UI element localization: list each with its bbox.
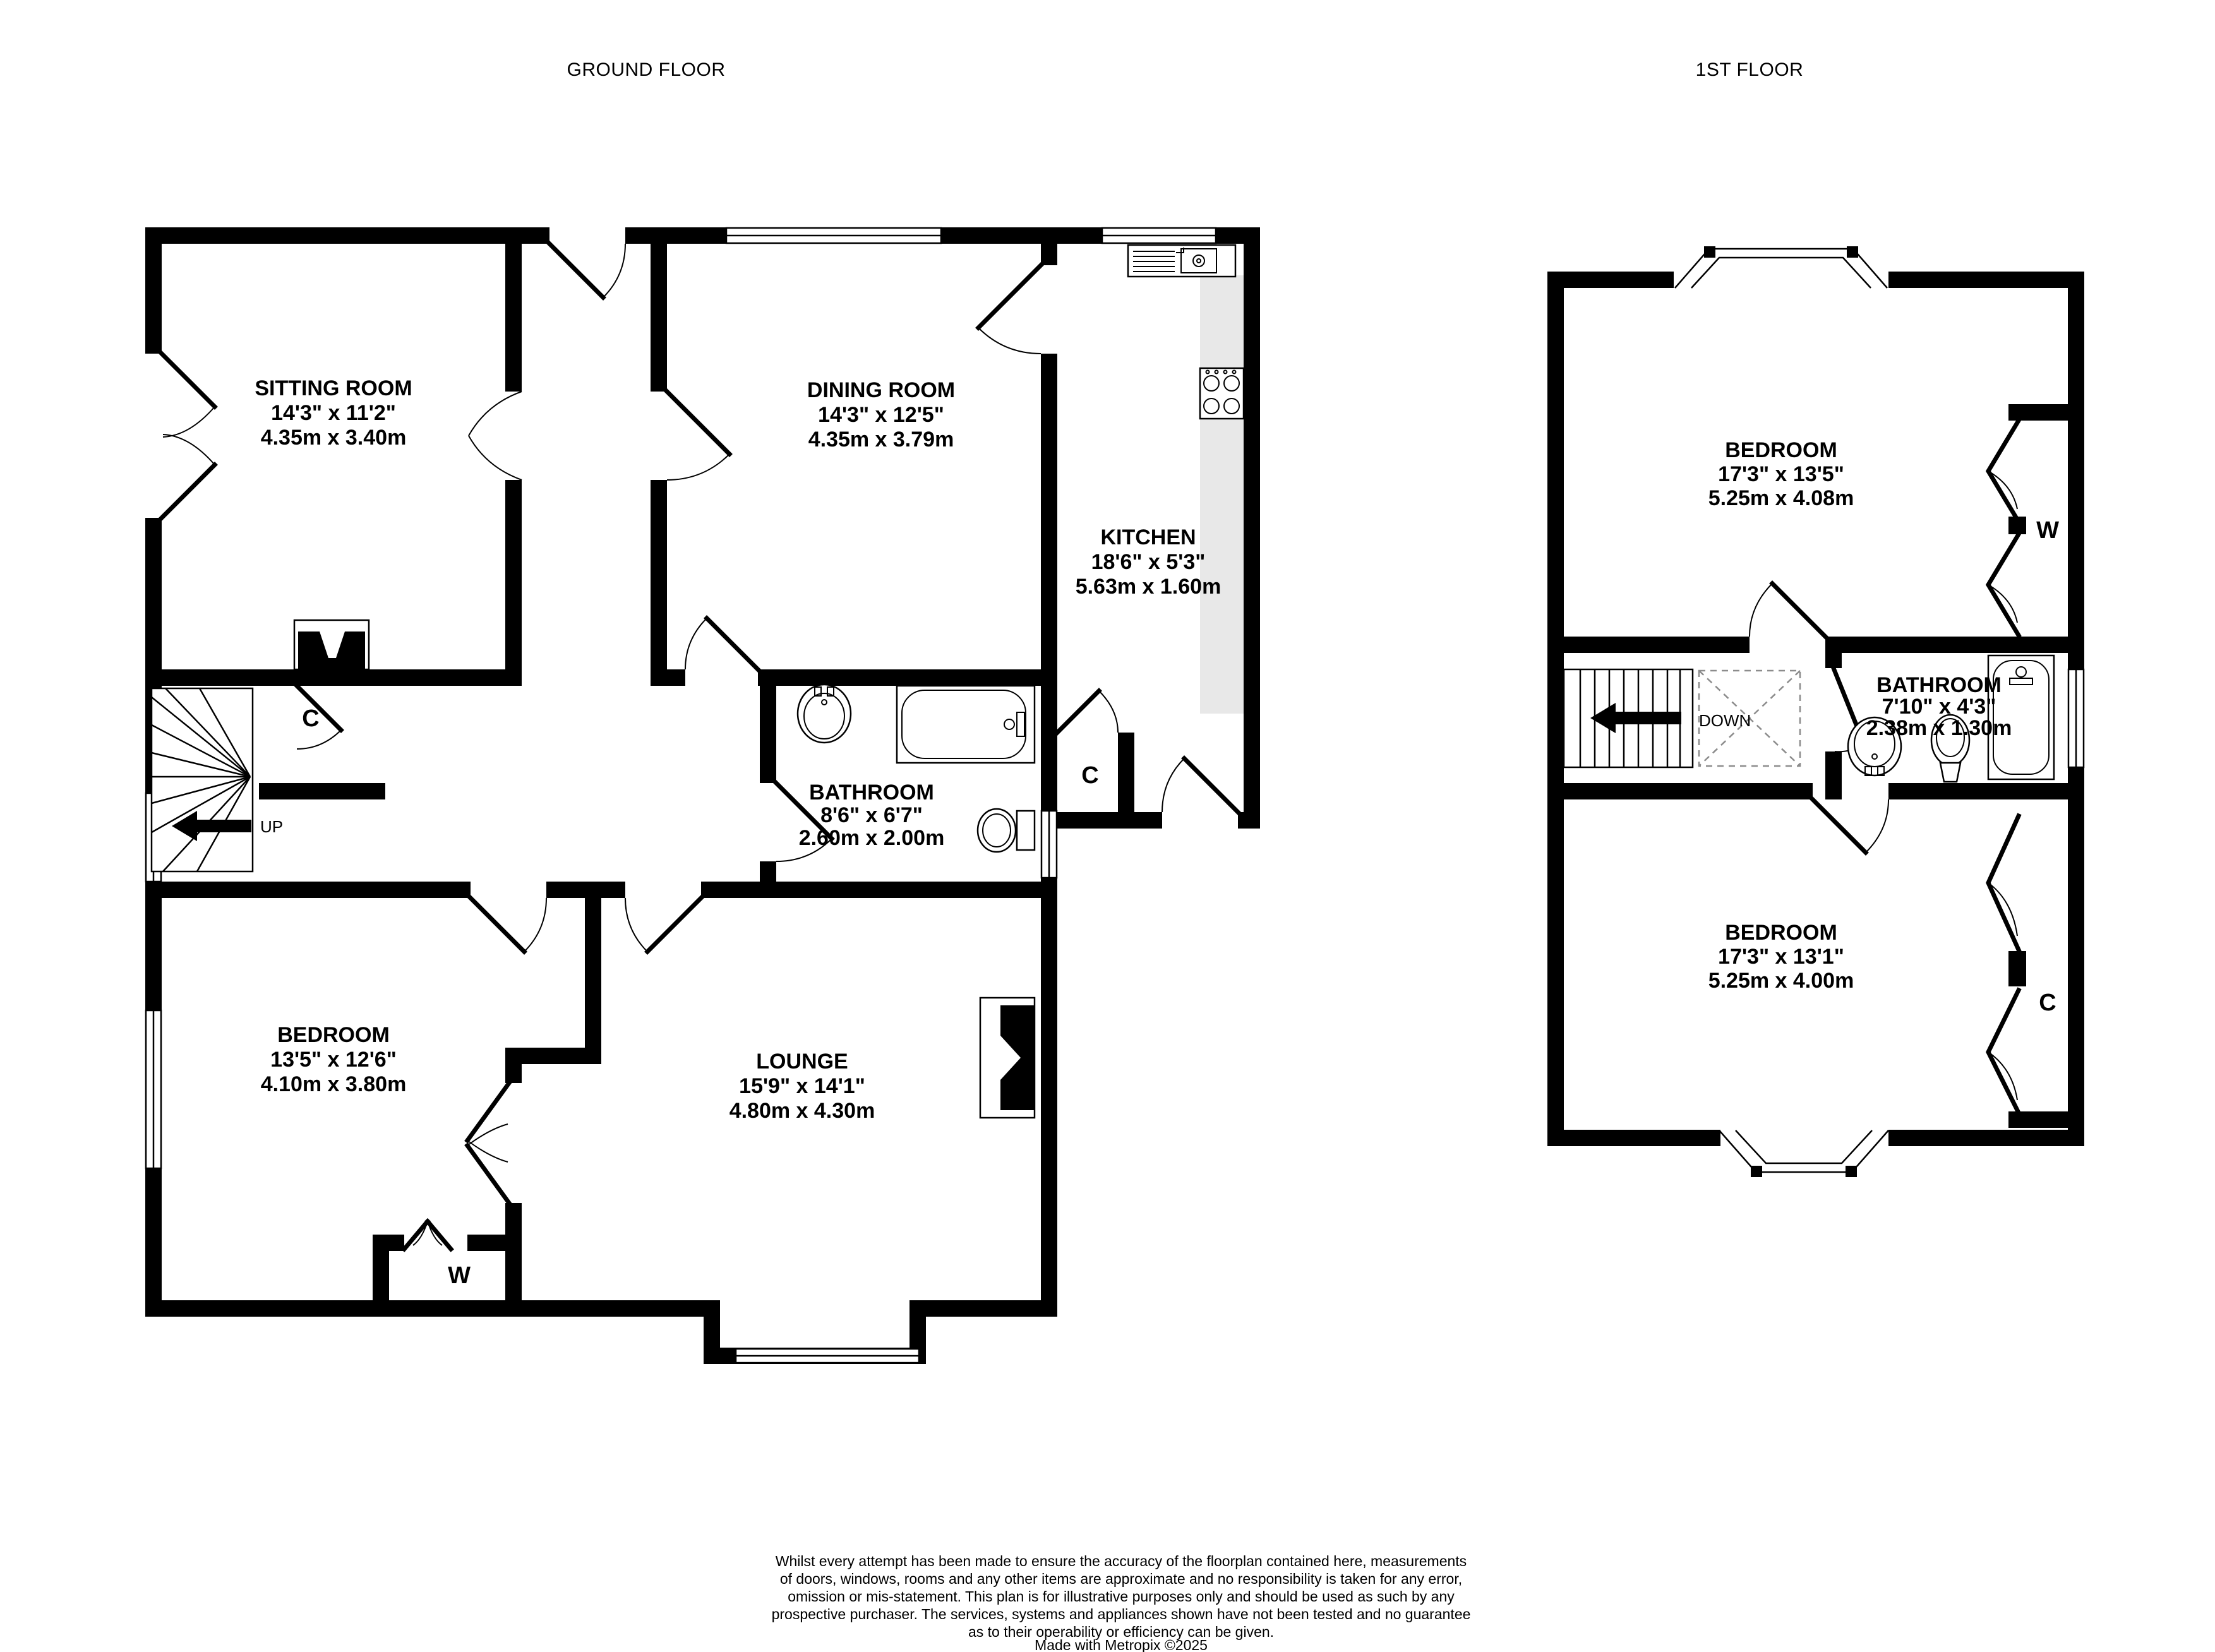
svg-text:14'3" x 11'2": 14'3" x 11'2" [271, 401, 396, 425]
svg-text:BEDROOM: BEDROOM [1725, 921, 1837, 945]
svg-text:17'3" x 13'1": 17'3" x 13'1" [1718, 945, 1844, 969]
first-floor-plan: BEDROOM 17'3" x 13'5" 5.25m x 4.08m BATH… [1547, 246, 2084, 1177]
bedroom-lounge-double-doors [467, 1083, 509, 1203]
disclaimer-line: Whilst every attempt has been made to en… [776, 1553, 1467, 1569]
bedroom-front-door [1750, 584, 1825, 637]
staircase-first [1564, 669, 1800, 767]
svg-text:BEDROOM: BEDROOM [1725, 438, 1837, 462]
svg-text:7'10" x 4'3": 7'10" x 4'3" [1882, 695, 1996, 719]
cupboard-label: C [2039, 990, 2056, 1016]
bedroom-back-door [1813, 799, 1888, 853]
bay-window [1675, 246, 1887, 288]
bathroom-label: BATHROOM 7'10" x 4'3" 2.38m x 1.30m [1866, 673, 2012, 740]
disclaimer-line: of doors, windows, rooms and any other i… [780, 1571, 1462, 1587]
cupboard-label: C [1081, 762, 1098, 789]
svg-text:13'5" x 12'6": 13'5" x 12'6" [270, 1048, 397, 1072]
svg-text:DINING ROOM: DINING ROOM [807, 378, 955, 402]
svg-text:4.10m x 3.80m: 4.10m x 3.80m [261, 1072, 407, 1096]
bedroom-front-label: BEDROOM 17'3" x 13'5" 5.25m x 4.08m [1708, 438, 1854, 510]
window [726, 228, 941, 243]
toilet [978, 809, 1035, 852]
svg-text:5.25m x 4.08m: 5.25m x 4.08m [1708, 486, 1854, 510]
bay-window [736, 1349, 919, 1363]
chimney-breast [980, 998, 1035, 1118]
bedroom-door [471, 898, 546, 952]
bedroom-label: BEDROOM 13'5" x 12'6" 4.10m x 3.80m [261, 1023, 407, 1096]
svg-text:4.80m x 4.30m: 4.80m x 4.30m [729, 1099, 875, 1123]
svg-text:2.60m x 2.00m: 2.60m x 2.00m [799, 826, 945, 850]
made-with-credit: Made with Metropix ©2025 [1035, 1637, 1208, 1652]
window [1041, 811, 1057, 878]
disclaimer-line: prospective purchaser. The services, sys… [772, 1606, 1471, 1622]
down-label: DOWN [1699, 711, 1751, 730]
wardrobe-label: W [2036, 517, 2059, 544]
svg-text:18'6" x 5'3": 18'6" x 5'3" [1091, 550, 1206, 574]
disclaimer: Whilst every attempt has been made to en… [772, 1553, 1471, 1652]
svg-text:BATHROOM: BATHROOM [1876, 673, 2002, 697]
lounge-door [625, 898, 701, 952]
french-doors [162, 354, 215, 518]
svg-text:5.25m x 4.00m: 5.25m x 4.00m [1708, 969, 1854, 993]
kitchen-sink-unit [1128, 245, 1235, 277]
fireplace [294, 620, 369, 669]
window [2068, 669, 2084, 767]
svg-text:5.63m x 1.60m: 5.63m x 1.60m [1076, 575, 1222, 599]
kitchen-cupboard-door [1057, 691, 1118, 733]
svg-text:SITTING ROOM: SITTING ROOM [255, 376, 412, 400]
svg-text:14'3" x 12'5": 14'3" x 12'5" [818, 403, 944, 427]
staircase-ground [152, 688, 253, 871]
ground-floor-title: GROUND FLOOR [567, 59, 725, 80]
bay-window [1719, 1130, 1888, 1177]
cupboard-label: C [302, 705, 319, 732]
floorplan-svg: GROUND FLOOR 1ST FLOOR [0, 0, 2215, 1652]
svg-text:4.35m x 3.79m: 4.35m x 3.79m [808, 428, 954, 452]
floorplan-page: GROUND FLOOR 1ST FLOOR [0, 0, 2215, 1652]
kitchen-counter [1200, 275, 1244, 714]
first-floor-title: 1ST FLOOR [1696, 59, 1804, 80]
window [1102, 228, 1216, 243]
svg-text:BEDROOM: BEDROOM [277, 1023, 390, 1047]
svg-text:4.35m x 3.40m: 4.35m x 3.40m [261, 426, 407, 450]
dining-room-label: DINING ROOM 14'3" x 12'5" 4.35m x 3.79m [807, 378, 955, 452]
hall-dining-door [667, 392, 729, 480]
svg-text:8'6" x 6'7": 8'6" x 6'7" [820, 803, 923, 827]
kitchen-label: KITCHEN 18'6" x 5'3" 5.63m x 1.60m [1076, 525, 1222, 599]
ground-floor-plan: SITTING ROOM 14'3" x 11'2" 4.35m x 3.40m… [145, 227, 1260, 1364]
svg-text:15'9" x 14'1": 15'9" x 14'1" [739, 1074, 865, 1098]
kitchen-door [978, 265, 1041, 354]
svg-text:17'3" x 13'5": 17'3" x 13'5" [1718, 462, 1844, 486]
bathroom-label: BATHROOM 8'6" x 6'7" 2.60m x 2.00m [799, 781, 945, 850]
bathtub [897, 686, 1035, 763]
svg-text:BATHROOM: BATHROOM [809, 781, 934, 805]
sitting-room-label: SITTING ROOM 14'3" x 11'2" 4.35m x 3.40m [255, 376, 412, 450]
svg-text:2.38m x 1.30m: 2.38m x 1.30m [1866, 716, 2012, 740]
window [146, 1010, 161, 1168]
ground-room-labels: SITTING ROOM 14'3" x 11'2" 4.35m x 3.40m… [255, 376, 1221, 1289]
bedroom-back-label: BEDROOM 17'3" x 13'1" 5.25m x 4.00m [1708, 921, 1854, 993]
basin [798, 685, 851, 743]
hob [1200, 368, 1244, 419]
up-label: UP [260, 817, 283, 836]
kitchen-back-door [1162, 758, 1238, 812]
wardrobe-bifold-doors [404, 1221, 451, 1249]
first-room-labels: BEDROOM 17'3" x 13'5" 5.25m x 4.08m BATH… [1699, 438, 2059, 1016]
lounge-label: LOUNGE 15'9" x 14'1" 4.80m x 4.30m [729, 1050, 875, 1123]
svg-text:LOUNGE: LOUNGE [756, 1050, 848, 1074]
disclaimer-line: omission or mis-statement. This plan is … [788, 1588, 1455, 1605]
front-door [549, 244, 625, 297]
wardrobe-label: W [448, 1262, 471, 1289]
svg-text:KITCHEN: KITCHEN [1100, 525, 1196, 549]
dining-hallway-door [685, 618, 758, 669]
